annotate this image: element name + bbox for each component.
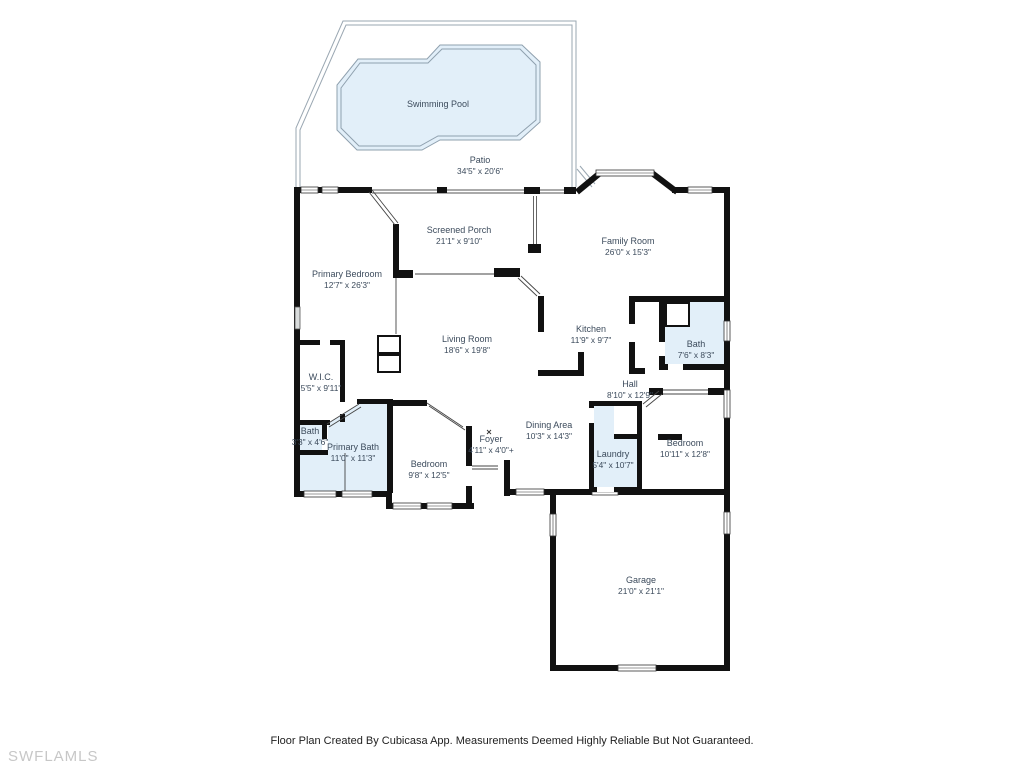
room-dims-living-room: 18'6" x 19'8": [444, 345, 490, 355]
room-dims-screened-porch: 21'1" x 9'10": [436, 236, 482, 246]
room-label-patio: Patio: [470, 155, 491, 165]
room-label-bedroom-2: Bedroom: [667, 438, 704, 448]
room-dims-primary-bedroom: 12'7" x 26'3": [324, 280, 370, 290]
room-label-screened-porch: Screened Porch: [427, 225, 492, 235]
closets: [378, 303, 689, 372]
room-label-garage: Garage: [626, 575, 656, 585]
mls-watermark: SWFLAMLS: [8, 748, 99, 765]
room-label-primary-bath: Primary Bath: [327, 442, 379, 452]
room-label-hall: Hall: [622, 379, 638, 389]
hall-closet-upper: [378, 336, 400, 353]
room-dims-foyer: 4'11" x 4'0"+: [468, 445, 514, 455]
footer-disclaimer: Floor Plan Created By Cubicasa App. Meas…: [0, 735, 1024, 747]
room-label-wic: W.I.C.: [309, 372, 334, 382]
room-dims-primary-bath: 11'0" x 11'3": [331, 453, 376, 463]
room-dims-laundry: 5'4" x 10'7": [592, 460, 633, 470]
room-label-primary-bedroom: Primary Bedroom: [312, 269, 382, 279]
floorplan-page: Swimming PoolPatio34'5" x 20'6"Screened …: [0, 0, 1024, 768]
room-label-foyer: Foyer: [479, 434, 502, 444]
room-label-bath-2: Bath: [687, 339, 706, 349]
room-dims-bedroom-1: 9'8" x 12'5": [408, 470, 449, 480]
room-label-bedroom-1: Bedroom: [411, 459, 448, 469]
swimming-pool-shape: [337, 45, 540, 150]
room-label-family-room: Family Room: [601, 236, 654, 246]
room-dims-wic: 5'5" x 9'11": [301, 383, 342, 393]
room-dims-bath-1: 3'3" x 4'6": [292, 437, 329, 447]
floorplan-drawing: Swimming PoolPatio34'5" x 20'6"Screened …: [0, 0, 1024, 768]
room-label-living-room: Living Room: [442, 334, 492, 344]
bath2-shower: [666, 303, 689, 326]
hall-closet-lower: [378, 355, 400, 372]
room-dims-family-room: 26'0" x 15'3": [605, 247, 651, 257]
laundry-fill: [594, 406, 637, 487]
room-dims-bedroom-2: 10'11" x 12'8": [660, 449, 710, 459]
room-label-dining-area: Dining Area: [526, 420, 573, 430]
room-dims-kitchen: 11'9" x 9'7": [571, 335, 612, 345]
room-dims-bath-2: 7'6" x 8'3": [678, 350, 715, 360]
room-label-swimming-pool: Swimming Pool: [407, 99, 469, 109]
room-label-bath-1: Bath: [301, 426, 320, 436]
room-dims-patio: 34'5" x 20'6": [457, 166, 503, 176]
room-dims-garage: 21'0" x 21'1": [618, 586, 664, 596]
room-dims-dining-area: 10'3" x 14'3": [526, 431, 572, 441]
room-label-laundry: Laundry: [597, 449, 630, 459]
room-label-kitchen: Kitchen: [576, 324, 606, 334]
room-dims-hall: 8'10" x 12'9": [607, 390, 653, 400]
